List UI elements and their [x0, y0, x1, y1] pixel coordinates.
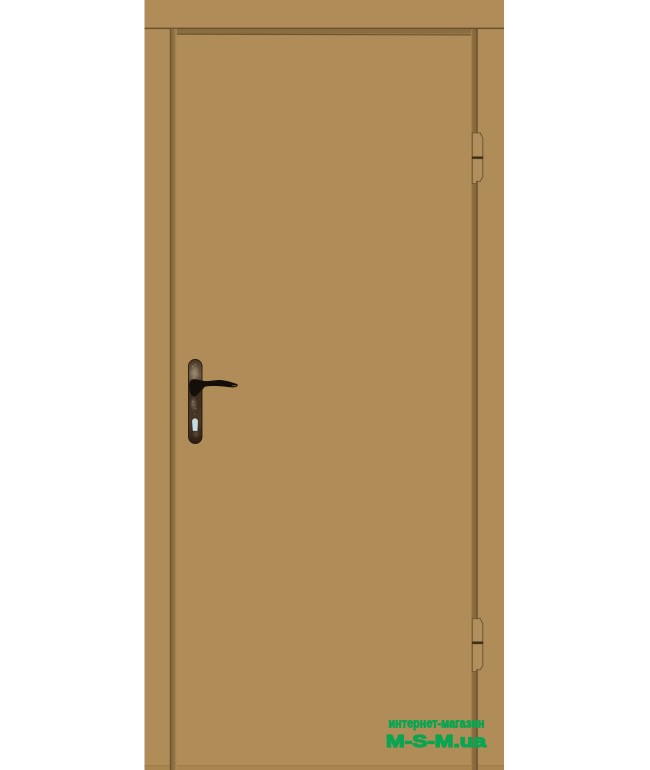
svg-text:M-S-M.ua: M-S-M.ua [386, 731, 486, 751]
svg-text:интернет-магазин: интернет-магазин [389, 715, 485, 730]
